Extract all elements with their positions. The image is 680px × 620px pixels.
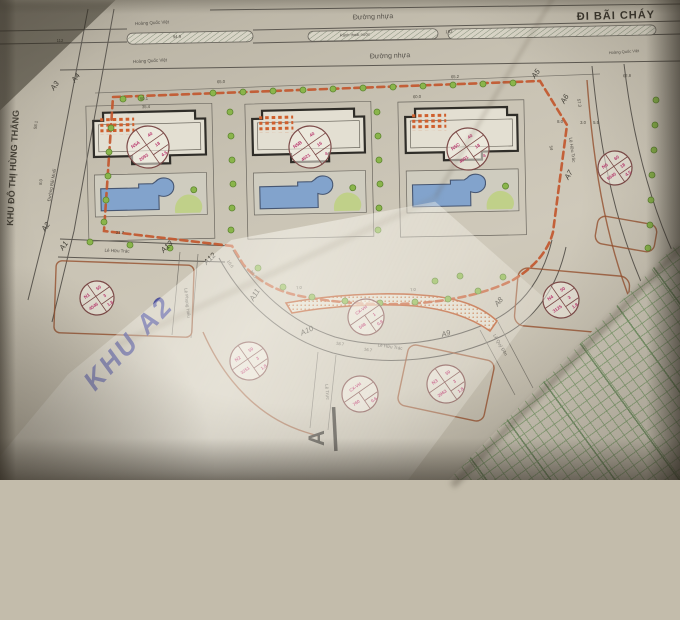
crescent-green-area bbox=[286, 294, 497, 331]
dimension-label-19: 58.1 bbox=[33, 120, 39, 129]
street-label-1: Hoàng Quốc Việt bbox=[133, 57, 168, 64]
tree-symbol bbox=[375, 133, 381, 139]
tree-symbol bbox=[475, 288, 481, 294]
tree-symbol bbox=[645, 245, 651, 251]
street-label-4: Đường nhựa bbox=[370, 52, 411, 60]
tree-symbol bbox=[342, 298, 348, 304]
dimension-label-11: 3.0 bbox=[580, 120, 586, 125]
tree-symbol bbox=[87, 239, 93, 245]
tree-symbol bbox=[105, 173, 111, 179]
dimension-label-9: 57.3 bbox=[576, 98, 582, 108]
boundary-marker-A8: A8 bbox=[492, 295, 506, 309]
tree-symbol bbox=[228, 227, 234, 233]
boundary-marker-A5: A5 bbox=[529, 67, 543, 81]
tree-symbol bbox=[270, 88, 276, 94]
dimension-label-7: 65.2 bbox=[451, 74, 460, 79]
dimension-label-10: 8.0 bbox=[557, 119, 563, 124]
tree-symbol bbox=[240, 89, 246, 95]
tree-symbol bbox=[330, 86, 336, 92]
dimension-label-20: 8.0 bbox=[38, 178, 44, 185]
tree-symbol bbox=[210, 90, 216, 96]
dimension-label-2: 102 bbox=[445, 29, 453, 34]
tree-symbol bbox=[647, 222, 653, 228]
tree-symbol bbox=[280, 284, 286, 290]
tree-symbol bbox=[480, 81, 486, 87]
tree-symbol bbox=[445, 296, 451, 302]
dimension-label-8: 62.8 bbox=[623, 73, 632, 78]
boundary-marker-A4: A4 bbox=[69, 71, 82, 85]
boundary-marker-A10: A10 bbox=[298, 323, 316, 338]
tree-symbol bbox=[120, 96, 126, 102]
tree-symbol bbox=[300, 87, 306, 93]
tree-symbol bbox=[390, 84, 396, 90]
tree-symbol bbox=[377, 181, 383, 187]
photographed-site-plan: { "page": { "di_bai_chay": "ĐI BÃI CHÁY"… bbox=[0, 0, 680, 480]
dimension-label-22: 10.0 bbox=[226, 259, 235, 269]
tree-symbol bbox=[500, 274, 506, 280]
boundary-marker-A9: A9 bbox=[439, 328, 452, 340]
boundary-marker-A13: A13 bbox=[158, 238, 175, 255]
khu-do-thi-hung-thang-label: KHU ĐÔ THỊ HÙNG THẮNG bbox=[4, 110, 21, 226]
street-label-3: Đường nhựa bbox=[353, 13, 394, 21]
street-label-5: Rãnh thoát nước bbox=[340, 32, 370, 38]
tree-symbol bbox=[227, 109, 233, 115]
tree-symbol bbox=[648, 197, 654, 203]
tree-symbol bbox=[127, 242, 133, 248]
tree-symbol bbox=[103, 197, 109, 203]
tree-symbol bbox=[255, 265, 261, 271]
tree-symbol bbox=[450, 82, 456, 88]
tree-symbol bbox=[229, 205, 235, 211]
tree-symbol bbox=[649, 172, 655, 178]
tree-symbol bbox=[108, 125, 114, 131]
dimension-label-13: 54 bbox=[548, 145, 554, 151]
tree-symbol bbox=[101, 219, 107, 225]
tree-symbol bbox=[457, 273, 463, 279]
section-marker-a: A bbox=[304, 407, 338, 451]
lot-label-n3-6: N350296331.8 bbox=[420, 358, 473, 411]
boundary-marker-A2: A2 bbox=[39, 220, 53, 234]
dimension-label-3: 65.0 bbox=[217, 79, 226, 84]
street-label-12: Đường Bãi Muối bbox=[46, 168, 57, 201]
tree-symbol bbox=[229, 157, 235, 163]
dimension-label-16: 16.7 bbox=[364, 347, 373, 353]
dimension-label-5: 35.4 bbox=[142, 104, 151, 109]
street-label-10: Lê Trực bbox=[324, 384, 331, 401]
tree-symbol bbox=[652, 122, 658, 128]
dimension-label-14: 21.7 bbox=[116, 230, 125, 235]
lot-label-n1-4: N150454631.8 bbox=[73, 274, 120, 321]
street-label-8: Lê Hữu Trác bbox=[568, 137, 577, 163]
dimension-label-0: 112 bbox=[57, 38, 64, 43]
tree-symbol bbox=[360, 85, 366, 91]
tree-symbol bbox=[230, 181, 236, 187]
dimension-label-1: 94.9 bbox=[173, 34, 182, 39]
di-bai-chay-label: ĐI BÃI CHÁY bbox=[577, 8, 656, 23]
lot-label-n4-7: N450312531.8 bbox=[536, 275, 586, 325]
tree-symbol bbox=[375, 227, 381, 233]
tree-symbol bbox=[510, 80, 516, 86]
svg-text:A: A bbox=[304, 430, 329, 446]
lot-label-cx-vh-9: CX-VH7600.6 bbox=[335, 369, 385, 419]
tree-symbol bbox=[106, 149, 112, 155]
boundary-marker-A7: A7 bbox=[562, 168, 575, 182]
boundary-marker-A12: A12 bbox=[201, 250, 218, 267]
street-label-6: Lê Hữu Trác bbox=[104, 248, 130, 254]
boundary-marker-A6: A6 bbox=[558, 92, 571, 106]
tree-symbol bbox=[374, 109, 380, 115]
street-label-2: Hoàng Quốc Việt bbox=[609, 48, 641, 55]
dimension-label-18: 7.0 bbox=[410, 287, 417, 293]
tree-symbol bbox=[376, 157, 382, 163]
tree-symbol bbox=[651, 147, 657, 153]
dimension-label-15: 18.7 bbox=[336, 341, 345, 347]
dimension-label-4: 50.1 bbox=[140, 96, 149, 101]
tree-symbol bbox=[228, 133, 234, 139]
tree-symbol bbox=[653, 97, 659, 103]
tree-symbol bbox=[420, 83, 426, 89]
tree-symbol bbox=[412, 299, 418, 305]
street-label-0: Hoàng Quốc Việt bbox=[135, 19, 170, 26]
road-median-strips bbox=[127, 25, 656, 44]
dimension-label-17: 7.0 bbox=[296, 285, 303, 291]
tree-symbol bbox=[376, 205, 382, 211]
boundary-marker-A1: A1 bbox=[57, 239, 70, 253]
dimension-label-6: 60.0 bbox=[413, 94, 422, 99]
dimension-label-12: 5.5 bbox=[593, 120, 599, 125]
tree-symbol bbox=[432, 278, 438, 284]
boundary-marker-A3: A3 bbox=[48, 79, 62, 93]
lot-label-n6-3: N6605640184.5 bbox=[591, 144, 638, 191]
tree-symbol bbox=[309, 294, 315, 300]
